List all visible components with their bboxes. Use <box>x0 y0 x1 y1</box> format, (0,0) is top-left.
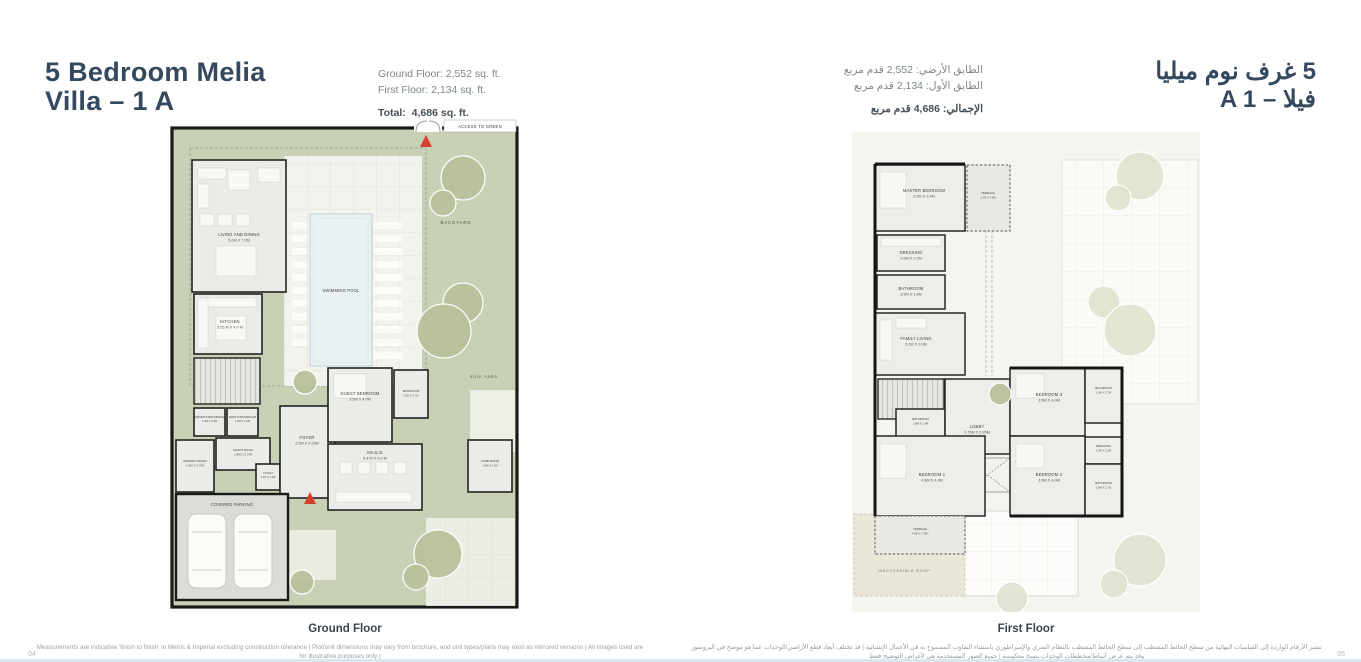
room-master-dressing: DRESSING 3.9M X 2.2M <box>877 235 945 271</box>
svg-text:4.8M X 4.3M: 4.8M X 4.3M <box>921 479 943 483</box>
page-number-right: 05 <box>1337 651 1345 658</box>
svg-text:BATHROOM: BATHROOM <box>912 417 929 421</box>
svg-text:BATHROOM: BATHROOM <box>1095 386 1112 390</box>
svg-text:3.5M X 4.0M: 3.5M X 4.0M <box>1038 399 1060 403</box>
room-kitchen: KITCHEN 3.55 M X 4.0 M <box>194 294 262 354</box>
room-bedroom-2: BEDROOM 2 3.5M X 4.0M <box>1010 436 1085 516</box>
room-bathroom-2: BATHROOM 1.8M X 2.7M <box>1085 464 1122 516</box>
room-bathroom-3: BATHROOM 1.8M X 2.7M <box>1085 368 1122 423</box>
svg-text:2.5M X 4.29M: 2.5M X 4.29M <box>295 442 319 446</box>
first-floor-caption: First Floor <box>852 623 1200 635</box>
svg-text:3.5M X 4.0M: 3.5M X 4.0M <box>349 398 371 402</box>
first-floor-plan: INACCESSIBLE ROOF MASTER BEDROOM 5.2M X … <box>852 132 1200 612</box>
room-pump-room: PUMP ROOM 1.8M X 3.0M <box>468 440 512 492</box>
svg-text:2.9M X 1.4M: 2.9M X 1.4M <box>913 422 929 426</box>
stat-first-floor-ar: الطابق الأول: 2,134 قدم مربع <box>844 78 983 94</box>
svg-text:FAMILY LIVING: FAMILY LIVING <box>900 336 931 341</box>
room-master-bedroom: MASTER BEDROOM 5.2M X 3.4M <box>875 165 965 231</box>
room-family-living: FAMILY LIVING 5.2M X 3.0M <box>875 313 965 375</box>
svg-text:BEDROOM 2: BEDROOM 2 <box>1036 472 1063 477</box>
svg-text:1.85M X 2.75M: 1.85M X 2.75M <box>234 453 253 457</box>
access-to-green-label: ACCESS TO GREEN <box>444 120 516 132</box>
page-title-ar-line2: فيلا – A 1 <box>1155 86 1316 114</box>
svg-text:TERRACE: TERRACE <box>981 191 995 195</box>
svg-text:FOYER: FOYER <box>299 435 314 440</box>
svg-text:3.75M X 2.85M: 3.75M X 2.85M <box>964 431 990 435</box>
ground-floor-plan: SWIMMING POOL LIVING AND DINING 5.0M X 7… <box>170 118 520 612</box>
stat-first-floor-en: First Floor: 2,134 sq. ft. <box>378 82 501 98</box>
access-gate-icon <box>414 119 442 132</box>
svg-text:MASTER BEDROOM: MASTER BEDROOM <box>903 188 946 193</box>
covered-parking: COVERED PARKING <box>176 494 288 600</box>
svg-text:1.8M X 2.7M: 1.8M X 2.7M <box>1096 391 1112 395</box>
svg-text:3.5M X 4.0M: 3.5M X 4.0M <box>1038 479 1060 483</box>
room-maids-bathroom: MAID'S BATHROOM 1.2M X 1.6M <box>227 408 258 436</box>
page-number-left: 04 <box>28 651 36 658</box>
room-hall-bathroom: BATHROOM 2.9M X 1.4M <box>896 409 945 437</box>
svg-text:KITCHEN: KITCHEN <box>220 319 239 324</box>
svg-text:5.2M X 3.0M: 5.2M X 3.0M <box>905 343 927 347</box>
svg-text:1.8M X 2.7M: 1.8M X 2.7M <box>403 394 419 398</box>
svg-text:4.9M X 1.75M: 4.9M X 1.75M <box>912 532 929 536</box>
svg-text:1.2M X 1.6M: 1.2M X 1.6M <box>235 419 251 423</box>
svg-text:MAJLIS: MAJLIS <box>367 450 383 455</box>
svg-text:5.0M X 7.2M: 5.0M X 7.2M <box>228 239 250 243</box>
svg-text:1.9M X 1.9M: 1.9M X 1.9M <box>1096 449 1112 453</box>
page-title: 5 Bedroom Melia Villa – 1 A <box>45 58 266 116</box>
svg-text:1.85M X 2.75M: 1.85M X 2.75M <box>186 464 205 468</box>
backyard-label: BACKYARD <box>440 220 471 225</box>
stairs-ground <box>194 358 260 404</box>
brochure-page: 5 Bedroom Melia Villa – 1 A Ground Floor… <box>0 0 1361 662</box>
svg-text:DRESSING: DRESSING <box>899 250 922 255</box>
room-living-dining: LIVING AND DINING 5.0M X 7.2M <box>192 160 286 292</box>
room-terrace-bottom: TERRACE 4.9M X 1.75M <box>875 516 965 554</box>
stat-ground-floor-en: Ground Floor: 2,552 sq. ft. <box>378 66 501 82</box>
car-icon <box>188 514 226 588</box>
svg-text:LOBBY: LOBBY <box>970 424 985 429</box>
ground-floor-caption: Ground Floor <box>170 623 520 635</box>
car-icon <box>234 514 272 588</box>
svg-text:3.9M X 1.8M: 3.9M X 1.8M <box>900 293 922 297</box>
side-yard-label: SIDE YARD <box>470 375 498 379</box>
room-drivers-bathroom: DRIVER'S BATHROOM 1.2M X 1.6M <box>194 408 225 436</box>
svg-text:BATHROOM: BATHROOM <box>1095 481 1112 485</box>
svg-text:3.55 M X 4.0 M: 3.55 M X 4.0 M <box>217 326 243 330</box>
svg-text:LIVING AND DINING: LIVING AND DINING <box>218 232 260 237</box>
svg-text:DRESSING: DRESSING <box>1096 444 1112 448</box>
svg-text:2.3M X 3.9M: 2.3M X 3.9M <box>980 196 996 200</box>
svg-text:1.8M X 3.0M: 1.8M X 3.0M <box>482 464 498 468</box>
svg-text:MAID'S BATHROOM: MAID'S BATHROOM <box>229 415 257 419</box>
svg-text:1.8M X 2.7M: 1.8M X 2.7M <box>1096 486 1112 490</box>
svg-text:BATHROOM: BATHROOM <box>898 286 923 291</box>
room-majlis: MAJLIS 5.4 M X 4.0 M <box>328 444 422 510</box>
page-title-arabic: 5 غرف نوم ميليا فيلا – A 1 <box>1155 58 1316 114</box>
svg-text:3.9M X 2.2M: 3.9M X 2.2M <box>900 257 922 261</box>
swimming-pool-label: SWIMMING POOL <box>322 288 360 293</box>
page-title-ar-line1: 5 غرف نوم ميليا <box>1155 58 1316 86</box>
room-guest-bedroom: GUEST BEDROOM 3.5M X 4.0M <box>328 368 392 442</box>
svg-text:ACCESS TO GREEN: ACCESS TO GREEN <box>458 124 502 129</box>
svg-text:BATHROOM: BATHROOM <box>403 389 420 393</box>
svg-text:GUEST BEDROOM: GUEST BEDROOM <box>340 391 379 396</box>
stat-total-ar: الإجمالي: 4,686 قدم مربع <box>844 101 983 117</box>
svg-text:PUMP ROOM: PUMP ROOM <box>481 459 500 463</box>
svg-text:COVERED PARKING: COVERED PARKING <box>211 502 254 507</box>
page-title-line1: 5 Bedroom Melia <box>45 58 266 87</box>
svg-text:1.2M X 1.6M: 1.2M X 1.6M <box>202 419 218 423</box>
room-bedroom-1: BEDROOM 1 4.8M X 4.3M <box>875 436 985 516</box>
room-master-bathroom: BATHROOM 3.9M X 1.8M <box>877 275 945 309</box>
svg-text:DRIVER'S BATHROOM: DRIVER'S BATHROOM <box>194 415 225 419</box>
svg-text:1.5M X 1.9M: 1.5M X 1.9M <box>260 475 276 479</box>
room-bedroom-3: BEDROOM 3 3.5M X 4.0M <box>1010 368 1085 436</box>
svg-text:5.2M X 3.4M: 5.2M X 3.4M <box>913 195 935 199</box>
room-foyer: FOYER 2.5M X 4.29M <box>280 406 335 498</box>
area-stats-en: Ground Floor: 2,552 sq. ft. First Floor:… <box>378 66 501 121</box>
page-title-line2: Villa – 1 A <box>45 87 266 116</box>
room-toilet: TOILET 1.5M X 1.9M <box>256 464 280 490</box>
svg-text:MAID'S ROOM: MAID'S ROOM <box>233 448 253 452</box>
svg-text:TERRACE: TERRACE <box>913 527 927 531</box>
room-dressing-2: DRESSING 1.9M X 1.9M <box>1085 437 1122 464</box>
svg-text:INACCESSIBLE ROOF: INACCESSIBLE ROOF <box>878 569 931 573</box>
stat-ground-floor-ar: الطابق الأرضي: 2,552 قدم مربع <box>844 62 983 78</box>
svg-text:DRIVER'S ROOM: DRIVER'S ROOM <box>183 459 207 463</box>
svg-text:5.4 M X 4.0 M: 5.4 M X 4.0 M <box>363 457 387 461</box>
area-stats-ar: الطابق الأرضي: 2,552 قدم مربع الطابق الأ… <box>844 62 983 117</box>
svg-text:BEDROOM 3: BEDROOM 3 <box>1036 392 1063 397</box>
room-guest-bathroom: BATHROOM 1.8M X 2.7M <box>394 370 428 418</box>
room-terrace-top: TERRACE 2.3M X 3.9M <box>967 165 1010 231</box>
svg-text:BEDROOM 1: BEDROOM 1 <box>919 472 946 477</box>
room-drivers-room: DRIVER'S ROOM 1.85M X 2.75M <box>176 440 214 492</box>
svg-text:TOILET: TOILET <box>263 471 273 475</box>
